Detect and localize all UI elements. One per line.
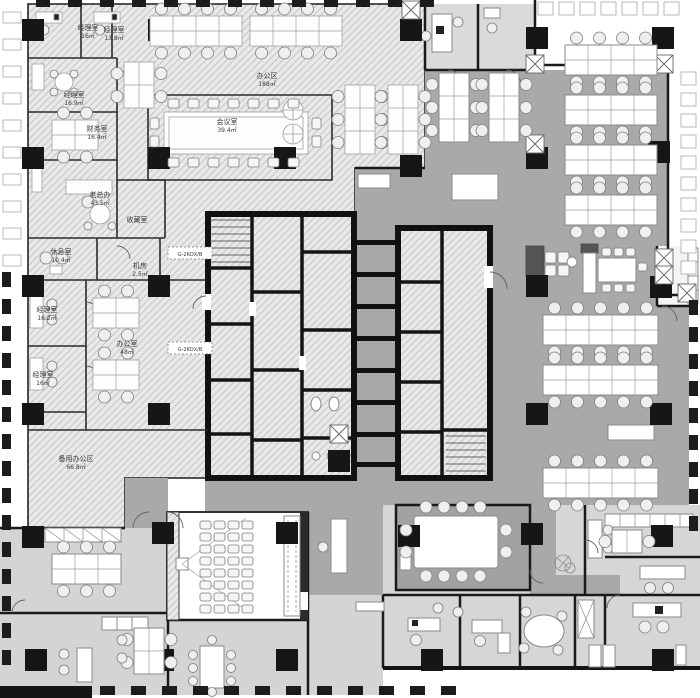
chair xyxy=(122,391,134,403)
manager-office-3-label: 经理室 xyxy=(64,90,85,99)
shaft-xbox xyxy=(402,1,420,19)
elevator-shaft-stubs-shape xyxy=(356,432,396,437)
chair xyxy=(641,455,653,467)
facade-mullion xyxy=(689,300,698,315)
facade-mullion xyxy=(100,686,115,695)
chair xyxy=(641,396,653,408)
chair xyxy=(150,118,159,129)
facade-mullion xyxy=(2,407,11,422)
facade-mullion xyxy=(2,515,11,530)
chair xyxy=(419,137,431,149)
chair xyxy=(99,391,111,403)
core-block-east xyxy=(398,228,490,478)
column xyxy=(652,649,674,671)
training-seat xyxy=(200,545,211,553)
corridor-south-2 xyxy=(556,575,620,595)
column xyxy=(22,147,44,169)
chair xyxy=(571,132,583,144)
chair xyxy=(99,347,111,359)
manager-office-2-area: 13.8㎡ xyxy=(104,34,123,42)
chair xyxy=(572,499,584,511)
facade-mullion xyxy=(255,686,270,695)
chair xyxy=(500,546,512,558)
chair xyxy=(549,396,561,408)
room-chairs-shape xyxy=(50,88,58,96)
manager-room-desks-shape xyxy=(112,14,117,20)
manager-office-1-area: 16㎡ xyxy=(81,32,95,40)
chair xyxy=(640,132,652,144)
facade-mullion xyxy=(286,686,301,695)
chair xyxy=(81,151,93,163)
chair xyxy=(602,284,611,292)
shaft-xbox xyxy=(526,135,544,153)
chair xyxy=(419,114,431,126)
core-door-gaps-shape xyxy=(249,302,256,316)
column xyxy=(421,649,443,671)
training-seat xyxy=(242,533,253,541)
chair xyxy=(602,248,611,256)
chair xyxy=(643,536,655,548)
column xyxy=(521,523,543,545)
shaft-xbox xyxy=(655,55,673,73)
room-chairs-shape xyxy=(50,70,58,78)
training-seat xyxy=(228,533,239,541)
chair xyxy=(618,455,630,467)
curtain-wall-panel xyxy=(622,2,637,15)
window-panel xyxy=(3,147,21,158)
training-seat xyxy=(228,521,239,529)
column xyxy=(22,526,44,548)
lounge-set-shape xyxy=(567,257,577,267)
chair xyxy=(617,132,629,144)
training-seat xyxy=(242,545,253,553)
chair xyxy=(99,285,111,297)
facade-mullion xyxy=(317,686,332,695)
column xyxy=(650,403,672,425)
chair xyxy=(117,635,127,645)
office-48-area: 48㎡ xyxy=(120,348,134,356)
south-office-furniture-shape xyxy=(498,633,510,653)
chair xyxy=(572,352,584,364)
facade-mullion xyxy=(2,434,11,449)
chair xyxy=(595,396,607,408)
manager-office-4-label: 经理室 xyxy=(37,305,58,314)
chair xyxy=(456,501,468,513)
spare-office-label: 备用办公区 xyxy=(59,454,94,463)
restroom-fixtures-shape xyxy=(329,397,339,411)
chair xyxy=(474,570,486,582)
east-office-furniture-shape xyxy=(663,583,674,594)
chair xyxy=(122,285,134,297)
chair xyxy=(614,248,623,256)
lounge-set-shape xyxy=(526,246,544,276)
training-seat xyxy=(228,569,239,577)
chair xyxy=(248,158,259,167)
curtain-wall-panel xyxy=(681,156,696,169)
curtain-wall-panel xyxy=(681,135,696,148)
chair xyxy=(155,91,167,103)
chair xyxy=(168,158,179,167)
chair xyxy=(227,664,236,673)
chair xyxy=(594,182,606,194)
facade-mullion xyxy=(164,0,178,7)
lounge-set-shape xyxy=(598,258,636,282)
chair xyxy=(571,182,583,194)
corridor-south-1 xyxy=(530,505,556,595)
chair xyxy=(165,657,177,669)
chair xyxy=(302,47,314,59)
south-office-furniture-shape xyxy=(519,643,529,653)
manager-room-desks-shape xyxy=(54,14,59,20)
chair xyxy=(571,226,583,238)
chair xyxy=(256,47,268,59)
south-office-furniture-shape xyxy=(639,621,651,633)
facade-mullion xyxy=(379,686,394,695)
facade-mullion xyxy=(2,380,11,395)
chair xyxy=(288,99,299,108)
chair xyxy=(549,352,561,364)
chair xyxy=(476,79,488,91)
chair xyxy=(474,501,486,513)
window-panel xyxy=(3,12,21,23)
workstation-cluster xyxy=(543,352,658,408)
chair xyxy=(640,82,652,94)
conference-room-furniture-shape xyxy=(414,516,498,568)
chair xyxy=(202,47,214,59)
rest-room-table xyxy=(50,266,62,274)
curtain-wall-panel xyxy=(559,2,574,15)
lobby-floor xyxy=(308,528,396,595)
chair xyxy=(155,68,167,80)
facade-mullion xyxy=(162,686,177,695)
chair xyxy=(572,396,584,408)
boss-office-area: 43.5㎡ xyxy=(90,199,109,207)
training-seat xyxy=(200,557,211,565)
curtain-wall-panel xyxy=(681,177,696,190)
facade-mullion xyxy=(689,381,698,396)
gap-table-2 xyxy=(358,174,390,188)
chair xyxy=(520,125,532,137)
column xyxy=(148,147,170,169)
chair xyxy=(165,634,177,646)
workstation-cluster xyxy=(375,85,431,154)
chair xyxy=(375,91,387,103)
south-office-furniture-shape xyxy=(433,603,443,613)
chair xyxy=(104,541,116,553)
chair xyxy=(594,82,606,94)
corner-wall xyxy=(0,686,92,698)
office-area-label: 办公区 xyxy=(257,71,278,80)
chair xyxy=(225,47,237,59)
chair xyxy=(595,455,607,467)
chair xyxy=(58,541,70,553)
chair xyxy=(618,499,630,511)
chair xyxy=(617,226,629,238)
chair xyxy=(426,125,438,137)
chair xyxy=(99,329,111,341)
training-door-gap xyxy=(300,592,308,610)
chair xyxy=(420,570,432,582)
finance-office-area: 16.4㎡ xyxy=(87,133,106,141)
column xyxy=(276,522,298,544)
facade-mullion xyxy=(224,686,239,695)
chair xyxy=(156,47,168,59)
lower-left-furniture-shape xyxy=(77,648,92,682)
chair xyxy=(279,47,291,59)
lounge-set-shape xyxy=(545,252,556,263)
shaft-xbox xyxy=(655,249,673,267)
chair xyxy=(594,226,606,238)
restroom-fixtures-shape xyxy=(312,452,320,460)
manager-office-3-area: 16.9㎡ xyxy=(64,99,83,107)
elevator-shaft-stubs-shape xyxy=(356,400,396,405)
facade-mullion xyxy=(260,0,274,7)
facade-mullion xyxy=(2,461,11,476)
training-seat xyxy=(242,569,253,577)
chair xyxy=(549,302,561,314)
lower-left-furniture-shape xyxy=(59,665,69,675)
column xyxy=(526,275,548,297)
training-seat xyxy=(200,593,211,601)
lower-left-furniture-shape xyxy=(59,649,69,659)
reception-desk-shape xyxy=(318,542,328,552)
chair xyxy=(638,263,647,271)
spare-office-area: 66.8㎡ xyxy=(66,463,85,471)
meeting-room-label: 会议室 xyxy=(217,117,238,126)
chair xyxy=(641,499,653,511)
chair xyxy=(117,653,127,663)
training-seat xyxy=(228,545,239,553)
facade-mullion xyxy=(441,686,456,695)
south-office-furniture-shape xyxy=(557,611,567,621)
bench-1 xyxy=(608,425,654,440)
bench-2 xyxy=(356,602,384,611)
training-seat xyxy=(214,557,225,565)
facade-mullion xyxy=(2,488,11,503)
column xyxy=(526,403,548,425)
elevator-shaft-stubs-shape xyxy=(356,272,396,277)
chair xyxy=(227,677,236,686)
chair xyxy=(438,501,450,513)
facade-mullion xyxy=(324,0,338,7)
manager-room-desks-shape xyxy=(32,166,42,192)
chair xyxy=(438,570,450,582)
training-seat xyxy=(214,533,225,541)
chair xyxy=(325,47,337,59)
chair xyxy=(268,99,279,108)
facade-mullion xyxy=(356,0,370,7)
chair xyxy=(640,32,652,44)
column xyxy=(400,155,422,177)
chair xyxy=(332,114,344,126)
window-panel xyxy=(3,39,21,50)
training-seat xyxy=(242,593,253,601)
facade-mullion xyxy=(689,462,698,477)
chair xyxy=(549,499,561,511)
facade-mullion xyxy=(100,0,114,7)
lounge-set-shape xyxy=(558,265,569,276)
chair xyxy=(572,455,584,467)
workstation-cluster xyxy=(426,73,482,142)
workstation-cluster xyxy=(543,455,658,511)
chair xyxy=(279,3,291,15)
south-office-furniture-shape xyxy=(524,615,564,647)
facade-mullion xyxy=(68,0,82,7)
column xyxy=(276,649,298,671)
chair xyxy=(189,651,198,660)
column xyxy=(152,522,174,544)
chair xyxy=(288,158,299,167)
window-panel xyxy=(3,255,21,266)
chair xyxy=(58,107,70,119)
facade-mullion xyxy=(2,326,11,341)
south-office-furniture-shape xyxy=(553,645,563,655)
dining-set-shape xyxy=(200,646,224,688)
machine-room-area: 2.5㎡ xyxy=(132,270,148,278)
column xyxy=(148,403,170,425)
workstation-cluster xyxy=(476,73,532,142)
south-office-furniture-shape xyxy=(412,620,418,626)
window-panel xyxy=(3,174,21,185)
chair xyxy=(595,302,607,314)
floor-plan-page: 经理室 16㎡ 经理室 13.8㎡ 经理室 16.9㎡ 财务室 16.4㎡ 办公… xyxy=(0,0,700,698)
training-seat xyxy=(214,605,225,613)
training-seat xyxy=(242,521,253,529)
boss-office-label: 老总办 xyxy=(90,190,111,199)
training-seat xyxy=(200,521,211,529)
chair xyxy=(571,82,583,94)
training-seat xyxy=(214,521,225,529)
chair xyxy=(189,677,198,686)
south-office-furniture-shape xyxy=(521,607,531,617)
room-chairs-shape xyxy=(70,70,78,78)
open-office-floor-east xyxy=(668,295,689,505)
elevator-shaft-stubs-shape xyxy=(356,304,396,309)
facade-mullion xyxy=(689,408,698,423)
training-seat xyxy=(214,569,225,577)
chair xyxy=(476,102,488,114)
chair xyxy=(332,137,344,149)
core-door-gaps-shape xyxy=(299,356,306,370)
south-office-furniture-shape xyxy=(453,607,463,617)
south-office-furniture-shape xyxy=(589,645,601,667)
chair xyxy=(426,102,438,114)
column xyxy=(526,27,548,49)
facade-mullion xyxy=(2,299,11,314)
curtain-wall-panel xyxy=(681,219,696,232)
south-office-furniture-shape xyxy=(657,621,669,633)
east-office-furniture-shape xyxy=(640,566,685,579)
south-office-furniture-shape xyxy=(472,620,502,633)
facade-mullion xyxy=(193,686,208,695)
top-office-furniture-shape xyxy=(453,17,463,27)
chair xyxy=(268,158,279,167)
top-office-furniture-shape xyxy=(421,31,431,41)
facade-mullion xyxy=(2,569,11,584)
curtain-wall-panel xyxy=(681,114,696,127)
elevator-shaft-stubs-shape xyxy=(356,240,396,245)
shaft-xbox xyxy=(330,425,348,443)
facade-mullion xyxy=(2,353,11,368)
office-area-area: 188㎡ xyxy=(258,80,275,88)
chair xyxy=(476,125,488,137)
chair xyxy=(614,284,623,292)
chair xyxy=(111,91,123,103)
room-chairs-shape xyxy=(84,222,92,230)
lounge-set-shape xyxy=(545,265,556,276)
chair xyxy=(549,455,561,467)
chair xyxy=(179,3,191,15)
chair xyxy=(599,536,611,548)
curtain-wall-panel xyxy=(643,2,658,15)
chair xyxy=(641,352,653,364)
chair xyxy=(520,102,532,114)
chair xyxy=(228,158,239,167)
restroom-fixtures-shape xyxy=(311,397,321,411)
south-office-furniture-shape xyxy=(603,645,615,667)
facade-mullion xyxy=(689,516,698,531)
training-seat xyxy=(200,569,211,577)
finance-office-label: 财务室 xyxy=(87,124,108,133)
corridor-west xyxy=(125,478,168,528)
workstation-cluster xyxy=(543,302,658,358)
window-panel xyxy=(3,120,21,131)
training-seat xyxy=(242,557,253,565)
dining-set xyxy=(200,646,224,688)
chair xyxy=(618,396,630,408)
curtain-wall-panel xyxy=(580,2,595,15)
chair xyxy=(312,136,321,147)
facade-mullion xyxy=(348,686,363,695)
lounge-set-shape xyxy=(583,253,596,293)
facade-mullion xyxy=(36,0,50,7)
curtain-wall-panel xyxy=(601,2,616,15)
chair xyxy=(58,585,70,597)
facade-mullion xyxy=(196,0,210,7)
chair xyxy=(189,664,198,673)
gap-table-1 xyxy=(452,174,498,200)
east-office-furniture-shape xyxy=(645,583,656,594)
manager-office-2-label: 经理室 xyxy=(104,25,125,34)
chair xyxy=(641,302,653,314)
chair xyxy=(419,91,431,103)
chair xyxy=(400,524,412,536)
chair xyxy=(420,501,432,513)
chair xyxy=(188,99,199,108)
facade-mullion xyxy=(689,327,698,342)
reception-desk-shape xyxy=(331,519,347,573)
chair xyxy=(188,158,199,167)
chair xyxy=(617,182,629,194)
lounge-set-shape xyxy=(581,244,598,253)
column xyxy=(328,450,350,472)
column xyxy=(22,19,44,41)
chair xyxy=(228,99,239,108)
facade-mullion xyxy=(131,686,146,695)
collection-room-label: 收藏室 xyxy=(127,215,148,224)
chair xyxy=(111,68,123,80)
chair xyxy=(104,585,116,597)
facade-mullion xyxy=(410,686,425,695)
facade-mullion xyxy=(132,0,146,7)
window-panel xyxy=(3,93,21,104)
chair xyxy=(208,158,219,167)
curtain-wall-panel xyxy=(681,198,696,211)
chair xyxy=(375,114,387,126)
manager-room-desks-shape xyxy=(32,64,44,90)
training-seat xyxy=(228,593,239,601)
column xyxy=(25,649,47,671)
